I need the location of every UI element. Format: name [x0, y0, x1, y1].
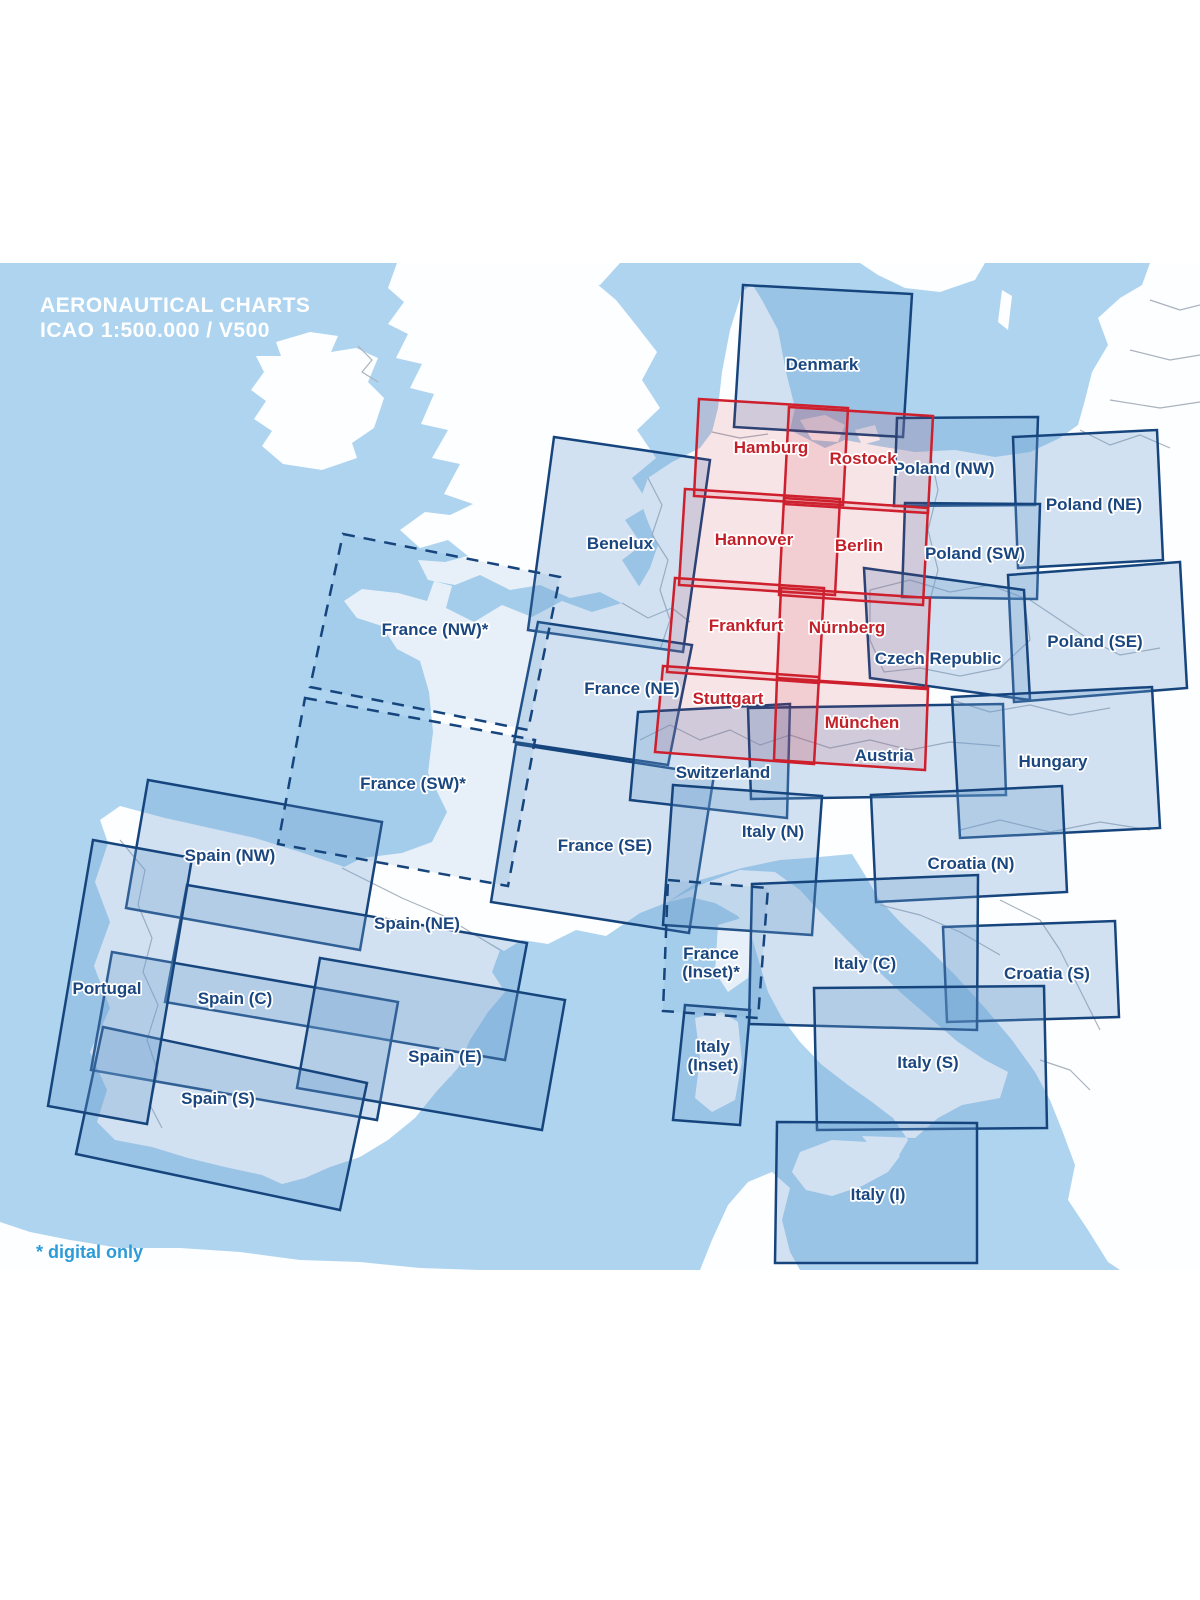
chart-label-poland-se: Poland (SE) — [1047, 632, 1142, 651]
chart-label-france-ne: France (NE) — [584, 679, 679, 698]
chart-box-nurnberg — [777, 588, 930, 689]
map-title-line1: AERONAUTICAL CHARTS — [40, 294, 310, 317]
chart-label-hamburg: Hamburg — [734, 438, 809, 457]
chart-label-italy-s: Italy (S) — [897, 1053, 958, 1072]
chart-label-spain-s: Spain (S) — [181, 1089, 255, 1108]
chart-label-france-inset: France(Inset)* — [682, 944, 740, 982]
chart-label-switzerland: Switzerland — [676, 763, 770, 782]
chart-label-poland-ne: Poland (NE) — [1046, 495, 1142, 514]
coverage-map-page: DenmarkPoland (NW)Poland (NE)Poland (SW)… — [0, 0, 1200, 1600]
chart-label-munchen: München — [825, 713, 900, 732]
chart-label-stuttgart: Stuttgart — [693, 689, 764, 708]
chart-label-hannover: Hannover — [715, 530, 794, 549]
chart-label-poland-nw: Poland (NW) — [893, 459, 994, 478]
chart-label-berlin: Berlin — [835, 536, 883, 555]
chart-label-poland-sw: Poland (SW) — [925, 544, 1025, 563]
chart-label-czech-republic: Czech Republic — [875, 649, 1002, 668]
chart-label-spain-ne: Spain (NE) — [374, 914, 460, 933]
chart-label-frankfurt: Frankfurt — [709, 616, 784, 635]
chart-label-france-se: France (SE) — [558, 836, 652, 855]
chart-label-spain-c: Spain (C) — [198, 989, 273, 1008]
chart-label-croatia-s: Croatia (S) — [1004, 964, 1090, 983]
chart-label-italy-i: Italy (I) — [851, 1185, 906, 1204]
chart-label-benelux: Benelux — [587, 534, 654, 553]
chart-label-portugal: Portugal — [73, 979, 142, 998]
coverage-map: DenmarkPoland (NW)Poland (NE)Poland (SW)… — [0, 0, 1200, 1600]
chart-label-italy-c: Italy (C) — [834, 954, 896, 973]
chart-label-denmark: Denmark — [786, 355, 859, 374]
digital-only-note: * digital only — [36, 1242, 143, 1262]
chart-label-nurnberg: Nürnberg — [809, 618, 886, 637]
map-title-line2: ICAO 1:500.000 / V500 — [40, 319, 270, 342]
chart-label-hungary: Hungary — [1019, 752, 1089, 771]
chart-label-spain-nw: Spain (NW) — [185, 846, 276, 865]
chart-label-croatia-n: Croatia (N) — [928, 854, 1015, 873]
chart-label-rostock: Rostock — [829, 449, 897, 468]
chart-label-austria: Austria — [855, 746, 914, 765]
chart-label-spain-e: Spain (E) — [408, 1047, 482, 1066]
chart-label-italy-n: Italy (N) — [742, 822, 804, 841]
chart-label-france-sw: France (SW)* — [360, 774, 466, 793]
chart-label-france-nw: France (NW)* — [382, 620, 489, 639]
